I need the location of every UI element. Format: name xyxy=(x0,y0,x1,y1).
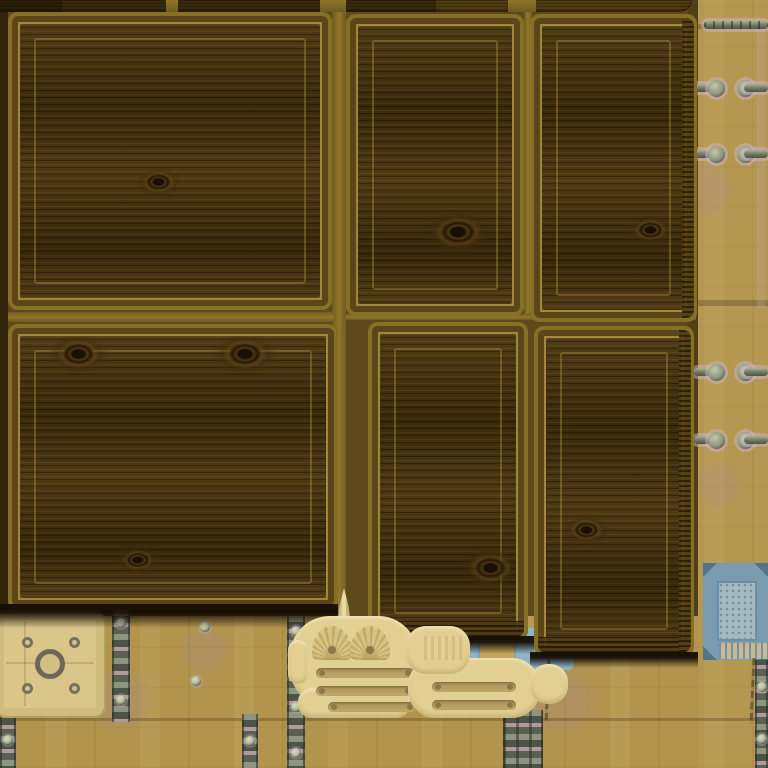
metal-joint-strip xyxy=(287,616,305,768)
crate-bottom-ribs xyxy=(538,637,690,653)
crate-wood-face xyxy=(546,338,682,644)
crate-drop-shadow xyxy=(530,652,698,668)
crate-gap-highlight xyxy=(8,312,334,322)
wood-knot xyxy=(423,209,493,255)
crate-inner-frame xyxy=(556,40,671,296)
crate-bottom-ribs xyxy=(372,621,524,637)
crate-inner-frame xyxy=(372,40,498,290)
pin-cap-left xyxy=(708,146,725,163)
wood-knot xyxy=(47,336,110,375)
crate-side-ribs xyxy=(679,330,691,652)
crate-wood-face xyxy=(20,24,320,298)
strip-rivet xyxy=(291,702,301,712)
crate-side-ribs xyxy=(682,18,694,318)
pin-rod-right xyxy=(744,436,768,444)
wood-knot xyxy=(134,166,183,198)
crate-5[interactable] xyxy=(368,322,528,640)
crate-inner-frame xyxy=(34,38,306,284)
upper-crate-segment xyxy=(436,0,508,12)
crate-inner-frame xyxy=(560,352,668,630)
strip-rivet xyxy=(757,682,767,692)
crate-wood-face xyxy=(380,334,516,628)
pin-rod-right xyxy=(744,84,768,92)
strip-rivet xyxy=(757,734,767,744)
upper-crate-segment xyxy=(346,0,436,12)
rivet-pin-row xyxy=(690,142,768,166)
rivet-pin-row xyxy=(690,76,768,100)
hatch-corner-rivet xyxy=(69,683,80,694)
upper-crate-segment xyxy=(320,0,346,12)
hatch-corner-rivet xyxy=(69,637,80,648)
pin-rod-right xyxy=(744,150,768,158)
pin-cap-left xyxy=(708,80,725,97)
upper-crate-segment xyxy=(178,0,320,12)
rivet-pin-row xyxy=(690,428,768,452)
upper-crate-segment xyxy=(0,0,62,12)
crate-wood-face xyxy=(358,26,512,304)
crate-drop-shadow xyxy=(0,604,338,628)
upper-crate-segment xyxy=(62,0,166,12)
hatch-corner-rivet xyxy=(22,637,33,648)
upper-crate-segment xyxy=(508,0,536,12)
crate-1[interactable] xyxy=(8,12,332,310)
crate-wood-face xyxy=(542,26,685,310)
metal-joint-strip xyxy=(242,714,258,768)
crate-drop-shadow xyxy=(362,636,534,654)
hatch-pull-ring[interactable] xyxy=(35,649,65,679)
metal-joint-strip xyxy=(755,652,768,768)
wood-knot xyxy=(562,514,611,546)
plate-corner-bracket xyxy=(703,563,717,577)
wood-knot xyxy=(115,545,161,575)
plate-corner-bracket xyxy=(703,646,717,660)
strip-rivet xyxy=(291,748,301,758)
pin-cap-left xyxy=(708,432,725,449)
game-scene xyxy=(0,0,768,768)
crate-inner-frame xyxy=(34,350,312,584)
wood-knot xyxy=(626,214,675,246)
crate-2[interactable] xyxy=(346,14,524,316)
floor-stain xyxy=(692,460,744,512)
strip-rivet xyxy=(3,735,13,745)
hatch-corner-rivet xyxy=(22,683,33,694)
blue-machine-plate[interactable] xyxy=(703,563,768,660)
metal-joint-strip xyxy=(503,710,543,768)
crate-3[interactable] xyxy=(530,14,697,322)
crate-bed-left-edge xyxy=(0,0,8,612)
upper-crate-segment xyxy=(536,0,692,12)
upper-crate-segment xyxy=(166,0,178,12)
plate-grate xyxy=(717,581,757,641)
wood-knot xyxy=(459,547,517,588)
floor-rivet xyxy=(191,676,201,686)
pipe-rod xyxy=(704,21,768,29)
crate-6[interactable] xyxy=(534,326,694,656)
pin-cap-left xyxy=(708,364,725,381)
strip-rivet xyxy=(116,695,126,705)
metal-joint-strip xyxy=(0,712,16,768)
crate-4[interactable] xyxy=(8,324,338,610)
lavender-highlight xyxy=(757,28,765,308)
pin-rod-right xyxy=(744,368,768,376)
crate-wood-face xyxy=(20,336,326,598)
rivet-pin-row xyxy=(690,360,768,384)
plate-comb-vent xyxy=(719,643,768,659)
plate-corner-bracket xyxy=(754,563,768,577)
strip-rivet xyxy=(245,736,255,746)
